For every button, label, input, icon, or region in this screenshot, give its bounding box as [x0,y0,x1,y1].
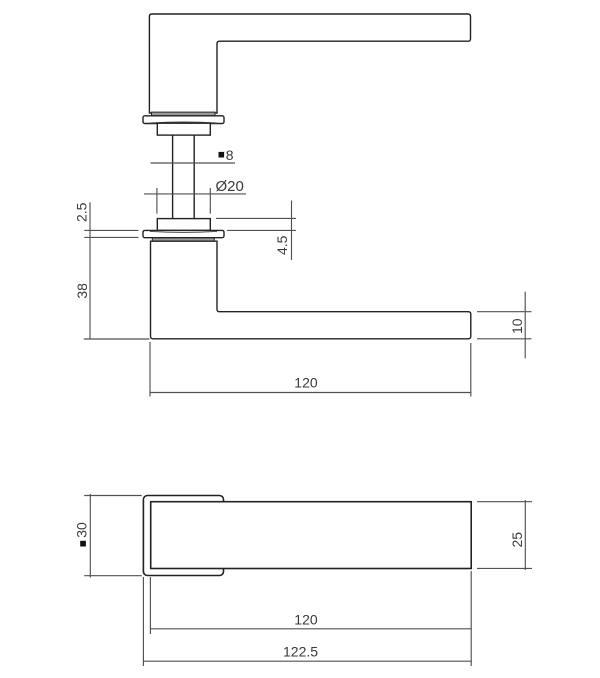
svg-text:4.5: 4.5 [274,235,290,255]
svg-text:120: 120 [294,611,318,627]
svg-text:122.5: 122.5 [283,644,318,660]
svg-text:30: 30 [74,522,90,538]
svg-text:10: 10 [509,318,525,334]
svg-text:Ø20: Ø20 [216,178,244,195]
svg-text:2.5: 2.5 [73,202,89,222]
svg-text:25: 25 [509,532,525,548]
svg-text:8: 8 [226,147,234,163]
svg-text:38: 38 [74,283,90,299]
svg-text:120: 120 [294,375,318,391]
